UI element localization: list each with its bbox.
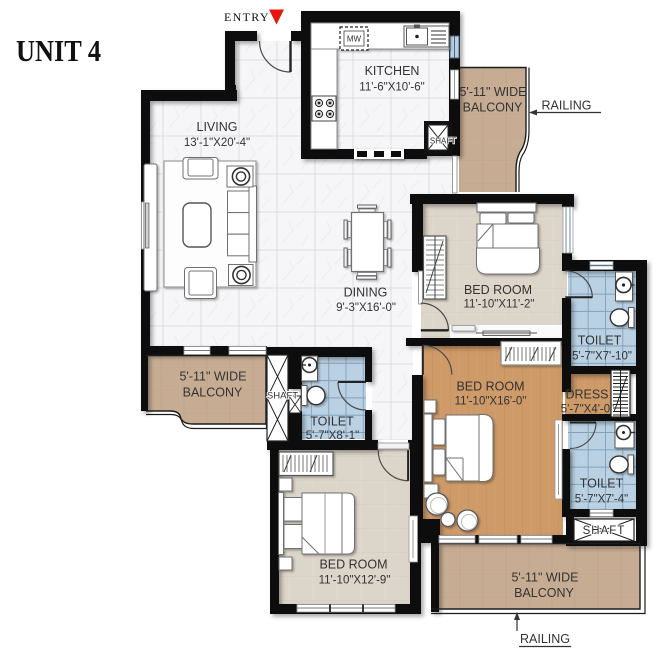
svg-text:BALCONY: BALCONY	[463, 101, 523, 115]
svg-text:11'-10"X11'-2": 11'-10"X11'-2"	[464, 299, 535, 311]
svg-text:TOILET: TOILET	[310, 415, 354, 429]
svg-text:11'-10"X16'-0": 11'-10"X16'-0"	[455, 396, 527, 408]
svg-text:ENTRY: ENTRY	[224, 10, 270, 24]
svg-text:5'-7"X4'-0": 5'-7"X4'-0"	[561, 404, 614, 416]
svg-text:5'-11" WIDE: 5'-11" WIDE	[459, 85, 526, 99]
svg-text:BED ROOM: BED ROOM	[464, 283, 532, 297]
svg-text:5'-7"X8'-1": 5'-7"X8'-1"	[306, 430, 359, 442]
svg-text:UNIT 4: UNIT 4	[16, 33, 101, 68]
svg-text:BED ROOM: BED ROOM	[456, 380, 524, 394]
svg-text:11'-6"X10'-6": 11'-6"X10'-6"	[359, 82, 424, 94]
svg-text:SHAFT: SHAFT	[583, 525, 626, 537]
svg-text:RAILING: RAILING	[541, 99, 591, 113]
svg-text:TOILET: TOILET	[578, 334, 622, 348]
svg-text:5'-7"X7'-4": 5'-7"X7'-4"	[575, 494, 628, 506]
svg-text:DINING: DINING	[344, 286, 388, 300]
svg-text:5'-11" WIDE: 5'-11" WIDE	[511, 571, 578, 585]
svg-text:BED ROOM: BED ROOM	[319, 558, 387, 572]
svg-text:RAILING: RAILING	[520, 632, 570, 646]
svg-text:TOILET: TOILET	[580, 477, 624, 491]
svg-text:5'-7"X7'-10": 5'-7"X7'-10"	[572, 351, 632, 363]
svg-text:DRESS: DRESS	[565, 388, 608, 402]
svg-text:SHAFT: SHAFT	[267, 391, 298, 402]
svg-text:KITCHEN: KITCHEN	[365, 64, 420, 78]
svg-text:11'-10"X12'-9": 11'-10"X12'-9"	[319, 575, 391, 587]
svg-text:13'-1"X20'-4": 13'-1"X20'-4"	[184, 137, 250, 149]
svg-text:BALCONY: BALCONY	[183, 386, 243, 400]
svg-text:LIVING: LIVING	[197, 120, 238, 134]
svg-text:9'-3"X16'-0": 9'-3"X16'-0"	[336, 302, 396, 314]
svg-text:5'-11" WIDE: 5'-11" WIDE	[179, 370, 246, 384]
svg-text:BALCONY: BALCONY	[514, 586, 574, 600]
svg-text:MW: MW	[347, 35, 362, 44]
svg-text:SHAFT: SHAFT	[430, 137, 456, 146]
